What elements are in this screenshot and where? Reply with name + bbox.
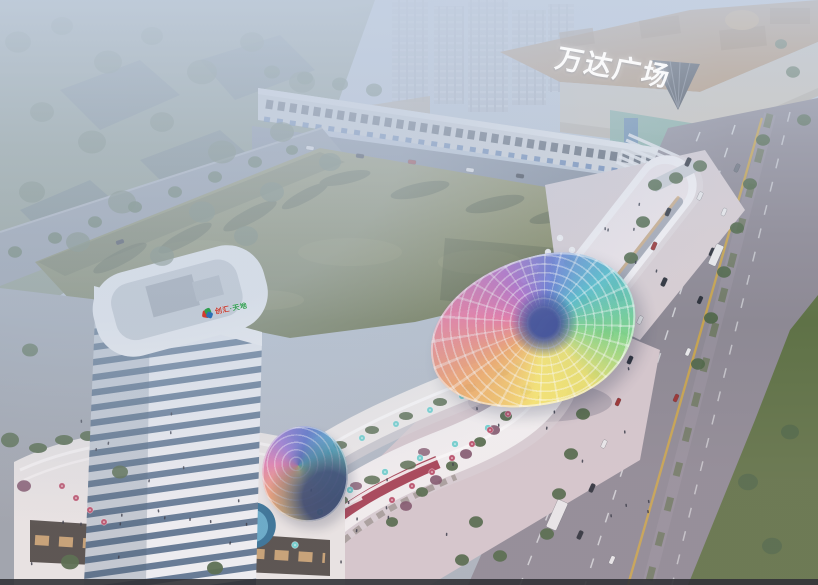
- rendering-scene: 万达广场 创汇·天地: [0, 0, 818, 585]
- scene-base-art: [0, 0, 818, 585]
- main-tower: [84, 237, 276, 585]
- bottom-edge-bar: [0, 579, 818, 585]
